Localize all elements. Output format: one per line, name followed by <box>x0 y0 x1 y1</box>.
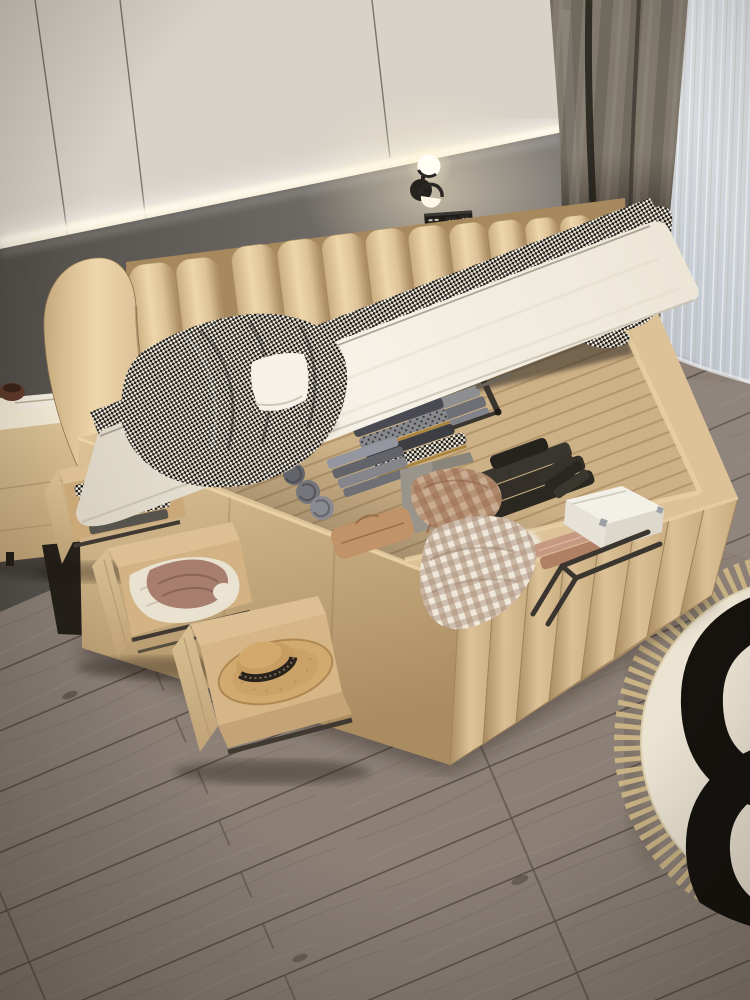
room-scene <box>0 0 750 1000</box>
vignette <box>0 0 750 1000</box>
scene-illustration <box>0 0 750 1000</box>
